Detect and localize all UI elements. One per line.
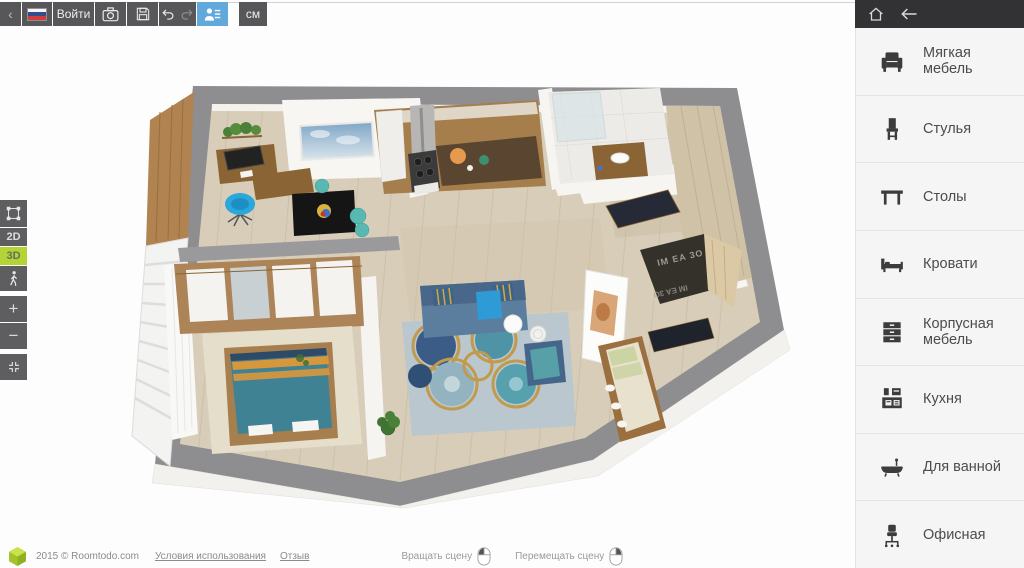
footer-bar: 2015 © Roomtodo.com Условия использовани… — [0, 545, 855, 568]
russian-flag-icon — [27, 8, 47, 21]
select-mode-button[interactable] — [0, 200, 27, 227]
camera-icon — [101, 6, 120, 23]
sidebar-item-cabinets[interactable]: Корпусная мебель — [856, 299, 1024, 367]
view-tools: 2D 3D — [0, 200, 27, 292]
fit-view-button[interactable] — [0, 354, 27, 380]
wardrobe-glass-door — [230, 266, 270, 320]
bathroom — [548, 88, 674, 184]
sidebar-item-chairs[interactable]: Стулья — [856, 96, 1024, 164]
user-list-icon — [203, 6, 222, 23]
teal-pouf — [315, 179, 329, 193]
zoom-tools: + − — [0, 296, 27, 350]
bathtub-icon — [879, 454, 905, 480]
account-panel-button-active[interactable] — [197, 2, 228, 26]
main-toolbar: ‹ Войти — [0, 2, 268, 26]
armchair-icon — [879, 48, 905, 74]
terms-link[interactable]: Условия использования — [155, 551, 266, 562]
kitchen — [374, 100, 546, 195]
sidebar-item-bathroom[interactable]: Для ванной — [856, 434, 1024, 502]
panel-header — [855, 0, 1024, 28]
office-chair-icon — [879, 522, 905, 548]
mouse-left-button-icon — [477, 547, 491, 566]
pan-hint-label: Перемещать сцену — [515, 551, 604, 562]
mode-3d-button-active[interactable]: 3D — [0, 247, 27, 265]
sidebar-item-label: Мягкая мебель — [923, 45, 1024, 77]
chair-icon — [879, 116, 905, 142]
side-table — [530, 326, 546, 342]
sidebar-item-label: Столы — [923, 189, 967, 205]
table-icon — [879, 184, 905, 210]
cabinet-icon — [879, 319, 905, 345]
back-button[interactable] — [899, 6, 919, 22]
rotate-hint-label: Вращать сцену — [401, 551, 472, 562]
walk-icon — [6, 270, 21, 288]
mode-2d-button[interactable]: 2D — [0, 228, 27, 246]
wall-tv — [300, 122, 374, 160]
login-button[interactable]: Войти — [53, 2, 94, 26]
sidebar-item-label: Для ванной — [923, 459, 1001, 475]
blue-throw — [476, 290, 502, 320]
floppy-icon — [135, 6, 151, 22]
screenshot-button[interactable] — [95, 2, 126, 26]
shower-glass — [552, 92, 606, 142]
copyright-text: 2015 © Roomtodo.com — [36, 551, 139, 562]
walk-mode-button[interactable] — [0, 266, 27, 291]
zoom-out-button[interactable]: − — [0, 323, 27, 349]
center-view-icon — [6, 359, 22, 375]
sidebar-item-beds[interactable]: Кровати — [856, 231, 1024, 299]
home-button[interactable] — [867, 5, 885, 23]
undo-icon — [161, 7, 176, 21]
sidebar-item-soft-furniture[interactable]: Мягкая мебель — [856, 28, 1024, 96]
app-window: IM EA 3O IM EA 3O — [0, 0, 1024, 568]
ottoman — [524, 340, 566, 386]
media-console — [292, 190, 356, 236]
sidebar-item-office[interactable]: Офисная — [856, 501, 1024, 568]
sidebar-item-label: Стулья — [923, 121, 971, 137]
catalog-sidebar: Мягкая мебель Стулья Столы Кровати — [855, 28, 1024, 568]
sidebar-item-label: Корпусная мебель — [923, 316, 1024, 348]
redo-icon — [179, 7, 194, 21]
sidebar-item-kitchen[interactable]: Кухня — [856, 366, 1024, 434]
apartment-3d-model: IM EA 3O IM EA 3O — [132, 86, 790, 508]
redo-button[interactable] — [177, 2, 196, 26]
fit-tools — [0, 354, 27, 381]
units-button[interactable]: см — [239, 2, 267, 26]
sidebar-item-label: Кухня — [923, 391, 962, 407]
roomtodo-logo — [7, 546, 28, 567]
fruit-bowl — [450, 148, 466, 164]
undo-button[interactable] — [159, 2, 177, 26]
zoom-in-button[interactable]: + — [0, 296, 27, 322]
sink — [611, 153, 629, 163]
collapse-toolbar-button[interactable]: ‹ — [0, 2, 21, 26]
sidebar-item-label: Офисная — [923, 527, 985, 543]
floorplan-canvas[interactable]: IM EA 3O IM EA 3O — [0, 28, 855, 545]
language-button[interactable] — [22, 2, 52, 26]
sidebar-item-tables[interactable]: Столы — [856, 163, 1024, 231]
collapse-chevron: ‹ — [8, 6, 13, 22]
bed-icon — [879, 251, 905, 277]
kitchen-icon — [879, 386, 905, 412]
selection-icon — [5, 205, 22, 222]
feedback-link[interactable]: Отзыв — [280, 551, 309, 562]
sidebar-item-label: Кровати — [923, 256, 978, 272]
save-button[interactable] — [127, 2, 158, 26]
mouse-right-button-icon — [609, 547, 623, 566]
